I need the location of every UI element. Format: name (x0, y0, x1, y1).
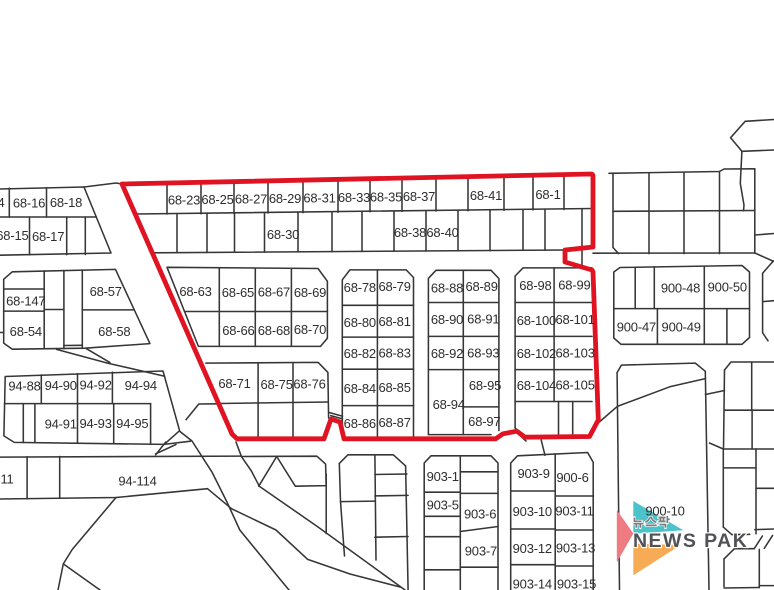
svg-text:68-147: 68-147 (6, 293, 45, 308)
svg-text:68-84: 68-84 (344, 381, 376, 396)
svg-text:68-23: 68-23 (168, 193, 200, 208)
svg-text:68-93: 68-93 (467, 345, 499, 360)
svg-text:68-16: 68-16 (13, 195, 45, 210)
svg-text:68-68: 68-68 (258, 323, 290, 338)
svg-text:68-1: 68-1 (535, 187, 560, 202)
svg-text:68-83: 68-83 (378, 345, 410, 360)
svg-text:68-27: 68-27 (235, 192, 267, 207)
svg-text:903-9: 903-9 (517, 466, 549, 481)
svg-text:94-90: 94-90 (45, 378, 77, 393)
svg-text:68-71: 68-71 (218, 376, 250, 391)
svg-text:68-65: 68-65 (222, 285, 254, 300)
svg-text:68-82: 68-82 (344, 346, 376, 361)
svg-text:68-94: 68-94 (433, 397, 465, 412)
svg-text:68-67: 68-67 (258, 284, 290, 299)
svg-text:68-105: 68-105 (555, 378, 594, 393)
svg-text:68-40: 68-40 (426, 225, 458, 240)
svg-text:903-14: 903-14 (513, 577, 552, 590)
svg-text:68-81: 68-81 (378, 314, 410, 329)
svg-text:68-92: 68-92 (431, 346, 463, 361)
svg-text:900-6: 900-6 (556, 470, 588, 485)
svg-text:903-11: 903-11 (555, 504, 593, 519)
svg-text:94-93: 94-93 (79, 416, 111, 431)
svg-text:68-54: 68-54 (10, 324, 42, 339)
svg-text:68-70: 68-70 (294, 322, 326, 337)
svg-text:94-91: 94-91 (45, 416, 77, 431)
svg-text:68-76: 68-76 (293, 376, 325, 391)
svg-text:NEWS PAK: NEWS PAK (633, 530, 748, 552)
svg-text:903-12: 903-12 (513, 541, 552, 556)
svg-text:68-18: 68-18 (50, 195, 82, 210)
svg-text:900-48: 900-48 (661, 281, 700, 296)
svg-text:68-91: 68-91 (467, 311, 499, 326)
svg-text:68-37: 68-37 (403, 189, 435, 204)
svg-text:68-25: 68-25 (201, 192, 233, 207)
svg-text:4: 4 (0, 195, 5, 210)
svg-text:68-90: 68-90 (431, 312, 463, 327)
svg-text:68-97: 68-97 (468, 414, 500, 429)
svg-text:903-15: 903-15 (557, 577, 596, 590)
svg-text:68-30: 68-30 (267, 227, 299, 242)
svg-text:68-17: 68-17 (32, 229, 64, 244)
svg-text:94-114: 94-114 (118, 473, 156, 488)
svg-text:68-35: 68-35 (370, 190, 402, 205)
svg-text:903-10: 903-10 (513, 504, 552, 519)
svg-text:68-75: 68-75 (260, 377, 292, 392)
svg-text:68-87: 68-87 (378, 415, 410, 430)
svg-text:68-31: 68-31 (303, 191, 335, 206)
svg-text:68-103: 68-103 (555, 345, 594, 360)
svg-text:903-6: 903-6 (464, 507, 496, 522)
svg-text:68-86: 68-86 (344, 416, 376, 431)
svg-text:68-85: 68-85 (378, 380, 410, 395)
svg-text:68-104: 68-104 (517, 378, 556, 393)
svg-text:68-58: 68-58 (98, 324, 130, 339)
svg-text:11: 11 (0, 472, 13, 487)
svg-text:68-100: 68-100 (517, 313, 556, 328)
svg-text:68-98: 68-98 (519, 278, 551, 293)
svg-text:68-80: 68-80 (344, 315, 376, 330)
svg-text:68-95: 68-95 (469, 378, 501, 393)
svg-text:903-7: 903-7 (465, 543, 497, 558)
svg-text:68-57: 68-57 (90, 284, 122, 299)
svg-text:94-94: 94-94 (125, 378, 157, 393)
svg-text:68-78: 68-78 (344, 280, 376, 295)
svg-text:68-79: 68-79 (378, 279, 410, 294)
svg-text:68-88: 68-88 (431, 281, 463, 296)
svg-text:900-49: 900-49 (662, 320, 701, 335)
svg-text:903-13: 903-13 (556, 541, 595, 556)
svg-text:903-1: 903-1 (427, 469, 459, 484)
svg-text:68-89: 68-89 (465, 279, 497, 294)
svg-text:68-69: 68-69 (294, 285, 326, 300)
svg-text:68-102: 68-102 (517, 346, 556, 361)
svg-text:68-41: 68-41 (470, 188, 502, 203)
svg-text:68-29: 68-29 (269, 191, 301, 206)
svg-text:68-33: 68-33 (338, 190, 370, 205)
svg-text:68-66: 68-66 (222, 323, 254, 338)
svg-text:68-38: 68-38 (394, 225, 426, 240)
svg-text:900-50: 900-50 (708, 280, 747, 295)
svg-text:68-101: 68-101 (555, 312, 594, 327)
svg-text:903-5: 903-5 (427, 498, 459, 513)
svg-text:900-47: 900-47 (617, 320, 656, 335)
svg-text:68-15: 68-15 (0, 228, 29, 243)
svg-text:68-99: 68-99 (558, 278, 590, 293)
svg-text:94-95: 94-95 (116, 416, 148, 431)
svg-text:94-92: 94-92 (79, 378, 111, 393)
svg-text:94-88: 94-88 (8, 379, 40, 394)
svg-text:68-63: 68-63 (179, 284, 211, 299)
